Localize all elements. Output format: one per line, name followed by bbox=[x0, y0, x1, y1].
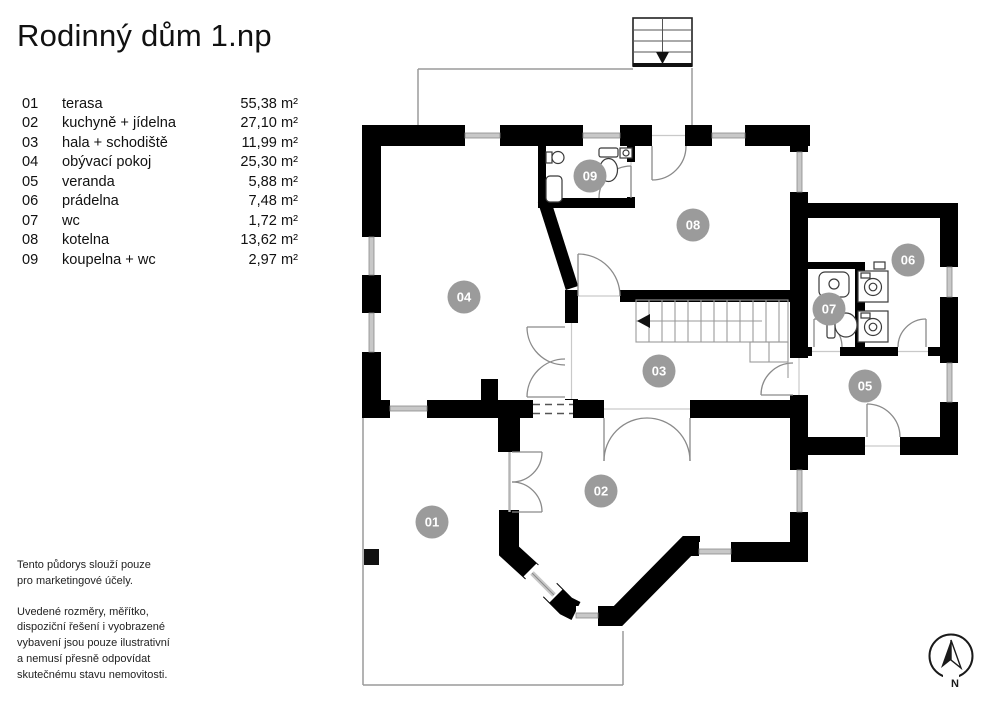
room-badge-03: 03 bbox=[643, 355, 676, 388]
room-badge-label: 01 bbox=[425, 515, 439, 530]
room-badge-01: 01 bbox=[416, 506, 449, 539]
room-badge-label: 09 bbox=[583, 169, 597, 184]
room-badge-label: 06 bbox=[901, 253, 915, 268]
terrace-outline bbox=[363, 418, 623, 685]
stairs-up-arrow bbox=[637, 314, 650, 328]
room-badge-label: 04 bbox=[457, 290, 472, 305]
room-badge-05: 05 bbox=[849, 370, 882, 403]
room-badge-07: 07 bbox=[813, 293, 846, 326]
washing-machine-1 bbox=[858, 271, 888, 302]
dashed-opening bbox=[533, 400, 573, 418]
shower-tray-09 bbox=[546, 176, 562, 202]
shelf-06 bbox=[874, 262, 885, 269]
water-heater-09 bbox=[620, 148, 632, 158]
room-badge-08: 08 bbox=[677, 209, 710, 242]
room-badge-label: 02 bbox=[594, 484, 608, 499]
room-badge-label: 03 bbox=[652, 364, 666, 379]
porch-outline bbox=[418, 68, 692, 125]
room-badge-label: 07 bbox=[822, 302, 836, 317]
room-badge-09: 09 bbox=[574, 160, 607, 193]
room-badge-label: 05 bbox=[858, 379, 872, 394]
room-badge-02: 02 bbox=[585, 475, 618, 508]
terrace-pillar bbox=[364, 549, 379, 565]
sink-07 bbox=[819, 272, 849, 297]
room-badge-label: 08 bbox=[686, 218, 700, 233]
sink-09 bbox=[546, 152, 564, 164]
floor-plan-page: { "title": "Rodinný dům 1.np", "legend":… bbox=[0, 0, 1000, 707]
room-badge-06: 06 bbox=[892, 244, 925, 277]
north-arrow-outline bbox=[951, 640, 961, 668]
floor-plan-drawing: 010203040506070809 N bbox=[0, 0, 1000, 707]
north-compass: N bbox=[930, 635, 973, 691]
north-label: N bbox=[951, 678, 959, 690]
external-stairs bbox=[633, 18, 692, 67]
north-arrow-filled bbox=[941, 640, 951, 668]
room-badge-04: 04 bbox=[448, 281, 481, 314]
washing-machine-2 bbox=[858, 311, 888, 342]
